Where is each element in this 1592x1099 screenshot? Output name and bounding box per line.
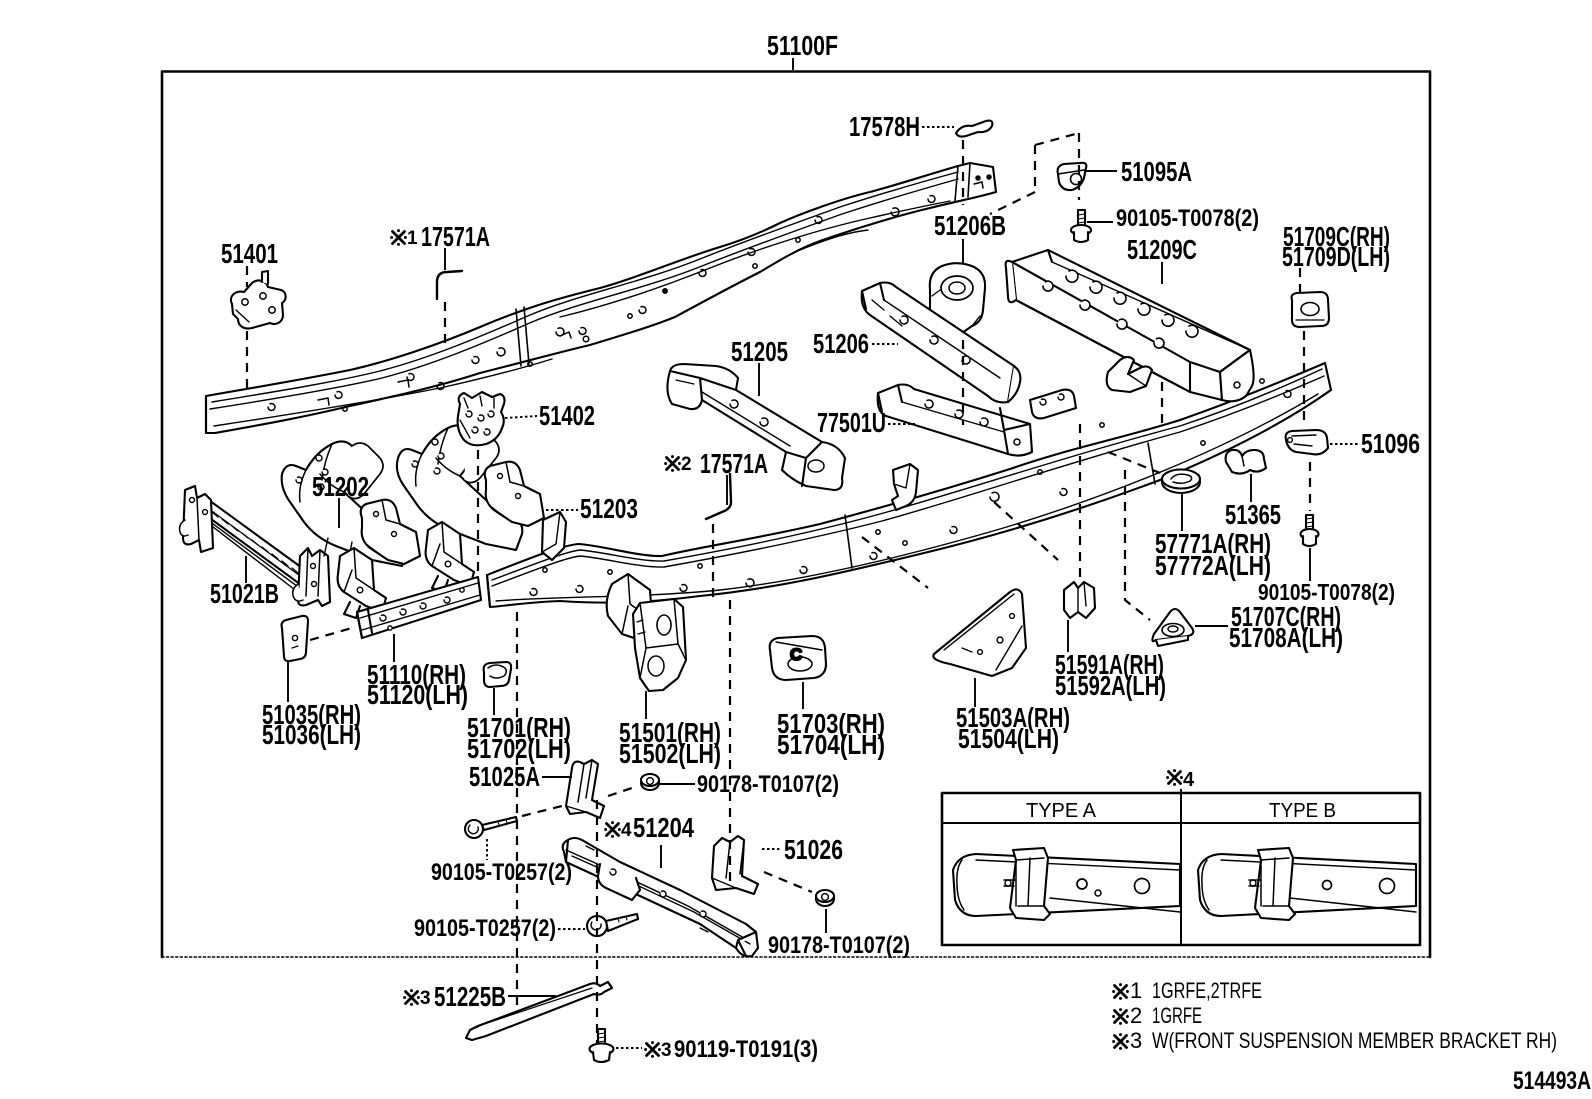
svg-text:90119-T0191(3): 90119-T0191(3) [674,1036,818,1063]
svg-text:51096: 51096 [1361,428,1420,459]
svg-text:51204: 51204 [633,812,694,843]
svg-text:17578H: 17578H [849,111,920,142]
svg-text:90105-T0257(2): 90105-T0257(2) [414,915,556,942]
svg-text:51206B: 51206B [934,210,1006,241]
svg-text:51708A(LH): 51708A(LH) [1229,622,1343,653]
svg-text:2: 2 [681,454,692,475]
svg-text:51592A(LH): 51592A(LH) [1055,670,1166,701]
svg-text:51206: 51206 [813,328,869,359]
svg-text:51202: 51202 [312,471,369,502]
svg-text:77501U: 77501U [817,407,886,438]
svg-text:51504(LH): 51504(LH) [958,723,1059,754]
svg-text:51203: 51203 [580,493,638,524]
svg-text:51709D(LH): 51709D(LH) [1282,241,1390,272]
svg-text:51025A: 51025A [469,761,540,792]
svg-text:51402: 51402 [539,400,595,431]
svg-text:51095A: 51095A [1121,156,1192,187]
svg-text:51021B: 51021B [210,578,279,609]
svg-text:90178-T0107(2): 90178-T0107(2) [697,771,839,798]
svg-text:2: 2 [1130,1003,1142,1028]
svg-text:3: 3 [1130,1028,1142,1053]
svg-text:17571A: 17571A [700,448,768,479]
svg-text:90105-T0078(2): 90105-T0078(2) [1116,205,1259,232]
svg-text:51365: 51365 [1225,499,1281,530]
svg-text:51225B: 51225B [434,981,506,1012]
svg-text:51502(LH): 51502(LH) [619,738,721,769]
svg-text:51100F: 51100F [767,30,838,61]
svg-text:90178-T0107(2): 90178-T0107(2) [768,932,910,959]
svg-text:C: C [790,645,802,664]
svg-text:1: 1 [1130,978,1142,1003]
svg-text:51120(LH): 51120(LH) [367,679,468,710]
svg-text:4: 4 [1183,769,1195,791]
svg-text:51702(LH): 51702(LH) [467,733,571,764]
svg-text:17571A: 17571A [421,221,490,252]
svg-text:3: 3 [661,1040,672,1061]
svg-text:W(FRONT SUSPENSION MEMBER BRAC: W(FRONT SUSPENSION MEMBER BRACKET RH) [1152,1028,1557,1053]
svg-text:90105-T0257(2): 90105-T0257(2) [431,859,572,886]
svg-text:1GRFE,2TRFE: 1GRFE,2TRFE [1152,978,1262,1003]
svg-text:51026: 51026 [784,834,843,865]
svg-text:1GRFE: 1GRFE [1152,1003,1202,1028]
svg-text:51209C: 51209C [1127,234,1197,265]
svg-text:TYPE A: TYPE A [1026,800,1097,822]
svg-text:51036(LH): 51036(LH) [262,719,361,750]
svg-text:1: 1 [407,228,418,249]
svg-text:TYPE B: TYPE B [1269,800,1336,822]
svg-text:51401: 51401 [221,238,278,269]
svg-text:51205: 51205 [731,336,788,367]
svg-text:514493A: 514493A [1513,1067,1591,1095]
svg-text:4: 4 [621,820,632,841]
svg-text:57772A(LH): 57772A(LH) [1155,550,1271,581]
svg-text:51704(LH): 51704(LH) [777,729,885,760]
svg-text:3: 3 [420,988,431,1009]
